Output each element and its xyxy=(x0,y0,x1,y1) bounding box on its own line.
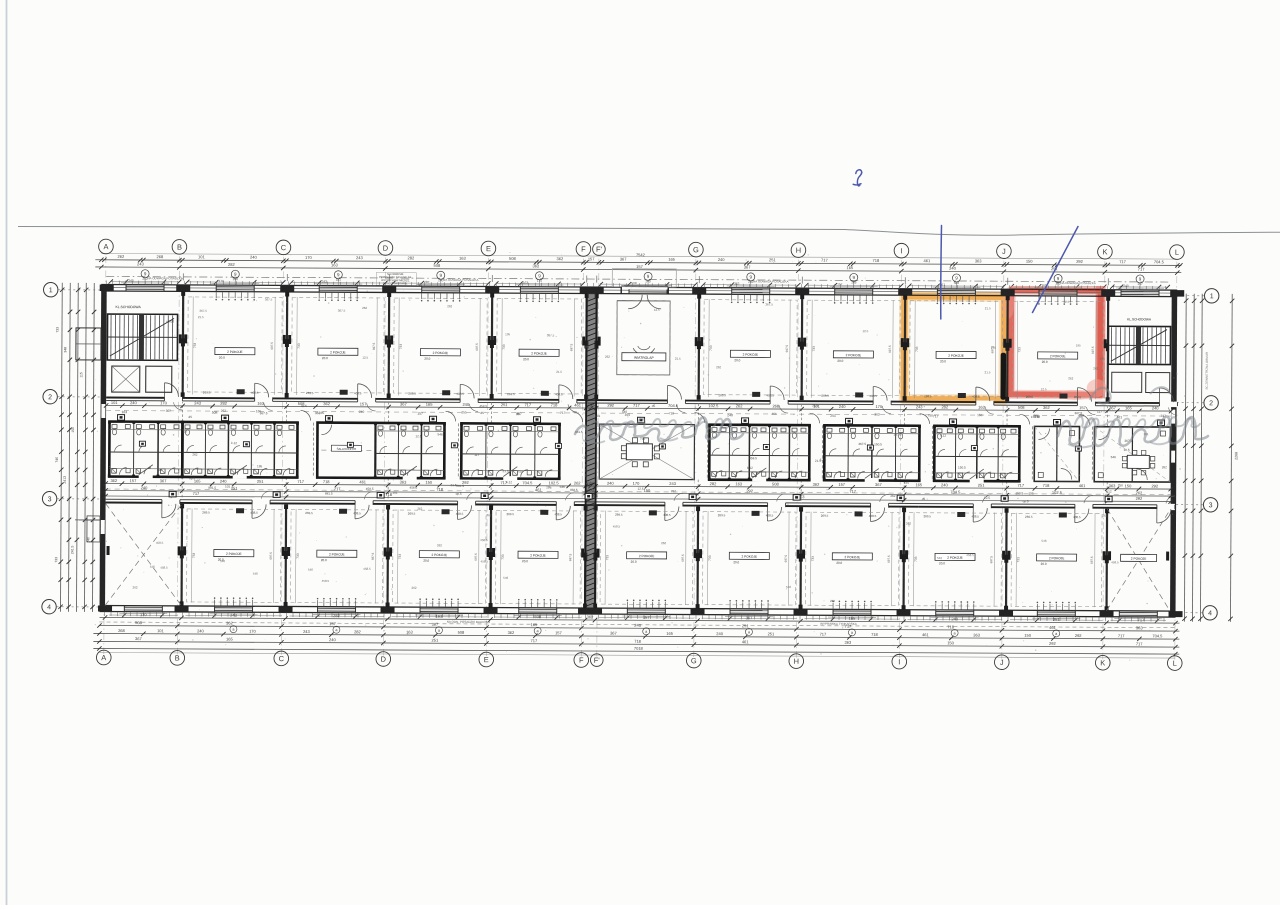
svg-text:733: 733 xyxy=(1016,557,1020,563)
svg-text:3: 3 xyxy=(48,496,52,503)
svg-text:12.5: 12.5 xyxy=(1124,448,1130,452)
svg-text:733: 733 xyxy=(192,553,196,559)
svg-text:717: 717 xyxy=(560,411,566,415)
svg-text:461: 461 xyxy=(535,487,542,492)
svg-text:269.5: 269.5 xyxy=(821,394,829,398)
svg-text:240: 240 xyxy=(949,266,956,271)
svg-text:697.5: 697.5 xyxy=(372,342,376,350)
svg-text:101: 101 xyxy=(225,485,230,489)
svg-text:408.5: 408.5 xyxy=(250,511,258,515)
svg-text:A: A xyxy=(101,653,106,662)
svg-text:750: 750 xyxy=(518,470,523,474)
svg-text:150: 150 xyxy=(947,640,954,645)
svg-text:546: 546 xyxy=(503,576,508,580)
svg-text:546: 546 xyxy=(150,565,155,569)
svg-text:733: 733 xyxy=(501,554,505,560)
svg-text:262: 262 xyxy=(447,304,452,308)
svg-text:292: 292 xyxy=(1049,641,1056,646)
svg-text:262: 262 xyxy=(1102,514,1107,518)
svg-text:362: 362 xyxy=(1043,405,1050,410)
svg-text:367: 367 xyxy=(160,478,167,483)
svg-text:458.5: 458.5 xyxy=(322,579,330,583)
svg-text:408.5: 408.5 xyxy=(972,395,980,399)
svg-text:KL.SCHODOWA: KL.SCHODOWA xyxy=(115,305,141,309)
svg-text:2 POKOJE: 2 POKOJE xyxy=(227,350,243,354)
svg-text:150: 150 xyxy=(425,480,432,485)
svg-text:240: 240 xyxy=(462,402,469,407)
svg-text:733: 733 xyxy=(915,346,919,352)
svg-text:458.5: 458.5 xyxy=(570,488,578,492)
svg-text:SC.ZEWNETRZNA OBMUR: SC.ZEWNETRZNA OBMUR xyxy=(1205,351,1209,390)
svg-text:2 POKOJE: 2 POKOJE xyxy=(432,553,448,557)
svg-text:20.0: 20.0 xyxy=(836,561,842,565)
svg-text:269.5: 269.5 xyxy=(305,511,313,515)
svg-text:733: 733 xyxy=(398,554,402,560)
svg-text:458.5: 458.5 xyxy=(366,487,374,491)
svg-text:546: 546 xyxy=(937,556,942,560)
svg-text:733: 733 xyxy=(605,555,609,561)
svg-text:881.5: 881.5 xyxy=(325,491,333,495)
svg-text:704.5: 704.5 xyxy=(1152,633,1163,638)
svg-text:268: 268 xyxy=(118,628,125,633)
svg-text:408.5: 408.5 xyxy=(554,512,562,516)
svg-text:20.0: 20.0 xyxy=(423,559,429,563)
svg-text:458.5: 458.5 xyxy=(480,538,488,542)
svg-text:165: 165 xyxy=(915,482,922,487)
svg-text:251: 251 xyxy=(978,483,985,488)
svg-text:12.5: 12.5 xyxy=(984,496,990,500)
svg-text:2 POKOJE: 2 POKOJE xyxy=(1049,556,1065,560)
svg-text:367.5: 367.5 xyxy=(894,433,902,437)
svg-text:704.5: 704.5 xyxy=(1154,259,1165,264)
svg-text:157: 157 xyxy=(1137,282,1143,286)
svg-text:408.5: 408.5 xyxy=(456,392,464,396)
svg-text:I: I xyxy=(898,657,900,666)
svg-text:697.5: 697.5 xyxy=(569,343,573,351)
svg-text:165: 165 xyxy=(666,631,673,636)
svg-text:733: 733 xyxy=(54,557,58,563)
svg-text:262: 262 xyxy=(437,543,442,547)
svg-text:363: 363 xyxy=(400,480,407,485)
svg-text:367.5: 367.5 xyxy=(260,411,268,415)
svg-text:704.5: 704.5 xyxy=(950,489,961,494)
svg-text:+0.00: +0.00 xyxy=(166,319,174,323)
svg-text:717: 717 xyxy=(849,489,856,494)
svg-text:362: 362 xyxy=(323,401,330,406)
svg-text:733: 733 xyxy=(296,553,300,559)
svg-text:697.5: 697.5 xyxy=(989,556,993,564)
svg-text:408.5: 408.5 xyxy=(766,513,774,517)
svg-text:262: 262 xyxy=(605,355,610,359)
svg-text:20.0: 20.0 xyxy=(522,559,528,563)
svg-text:362: 362 xyxy=(226,621,233,626)
svg-text:195: 195 xyxy=(584,345,589,349)
svg-text:717: 717 xyxy=(821,258,828,263)
svg-text:H: H xyxy=(794,657,799,666)
svg-text:697.5: 697.5 xyxy=(784,554,788,562)
svg-text:20.0: 20.0 xyxy=(1041,562,1047,566)
svg-text:367: 367 xyxy=(432,622,439,627)
svg-text:B: B xyxy=(175,654,180,663)
svg-text:262: 262 xyxy=(221,409,226,413)
svg-text:12.5: 12.5 xyxy=(362,356,368,360)
svg-text:251: 251 xyxy=(257,479,264,484)
svg-text:508: 508 xyxy=(458,630,465,635)
svg-text:2 POKOJE: 2 POKOJE xyxy=(330,350,346,354)
svg-text:NA ODWAGA POSADZKA: NA ODWAGA POSADZKA xyxy=(753,279,788,283)
svg-text:268: 268 xyxy=(772,403,779,408)
svg-text:282: 282 xyxy=(333,613,340,618)
svg-text:20.0: 20.0 xyxy=(631,560,637,564)
svg-text:7018: 7018 xyxy=(634,646,644,651)
svg-text:165: 165 xyxy=(849,616,856,621)
svg-text:157: 157 xyxy=(360,401,367,406)
svg-text:195: 195 xyxy=(319,411,324,415)
svg-text:362: 362 xyxy=(532,263,539,268)
svg-text:20.0: 20.0 xyxy=(734,358,740,362)
svg-text:251: 251 xyxy=(501,402,508,407)
svg-text:269.5: 269.5 xyxy=(1025,515,1033,519)
svg-text:461: 461 xyxy=(924,258,931,263)
svg-text:733: 733 xyxy=(812,346,816,352)
svg-text:157: 157 xyxy=(1079,405,1086,410)
svg-text:262: 262 xyxy=(412,586,417,590)
svg-text:163: 163 xyxy=(523,281,529,285)
svg-text:20.0: 20.0 xyxy=(733,560,739,564)
svg-text:251: 251 xyxy=(830,414,836,418)
svg-text:363: 363 xyxy=(845,640,852,645)
svg-text:262: 262 xyxy=(362,306,367,310)
svg-text:718: 718 xyxy=(871,632,878,637)
svg-text:717: 717 xyxy=(297,479,304,484)
svg-text:733: 733 xyxy=(297,343,301,349)
svg-text:L: L xyxy=(1173,659,1177,668)
svg-text:195: 195 xyxy=(904,481,909,485)
svg-text:262: 262 xyxy=(142,277,148,281)
svg-text:717: 717 xyxy=(1138,267,1145,272)
svg-text:117: 117 xyxy=(1097,410,1102,414)
svg-text:2268: 2268 xyxy=(1234,452,1238,460)
svg-text:21.5: 21.5 xyxy=(198,315,204,319)
svg-text:733: 733 xyxy=(1017,347,1021,353)
svg-text:240: 240 xyxy=(607,481,614,486)
svg-text:k.12: k.12 xyxy=(747,466,753,470)
svg-text:262: 262 xyxy=(736,403,743,408)
svg-text:362: 362 xyxy=(508,630,515,635)
svg-text:251: 251 xyxy=(769,257,776,262)
svg-text:163: 163 xyxy=(257,401,264,406)
svg-text:458.5: 458.5 xyxy=(481,559,489,563)
svg-text:195: 195 xyxy=(546,485,551,489)
svg-text:102.5: 102.5 xyxy=(708,403,719,408)
svg-text:733: 733 xyxy=(193,343,197,349)
svg-text:A: A xyxy=(103,242,108,251)
svg-text:G: G xyxy=(693,245,699,254)
svg-text:718: 718 xyxy=(947,624,954,629)
svg-text:d5: d5 xyxy=(517,412,521,416)
svg-text:2 POKOJE: 2 POKOJE xyxy=(226,552,242,556)
svg-text:KL.SCHODOWA: KL.SCHODOWA xyxy=(1127,317,1152,321)
svg-text:101: 101 xyxy=(157,628,164,633)
svg-text:12.5: 12.5 xyxy=(1041,387,1047,391)
svg-text:367: 367 xyxy=(135,636,142,641)
svg-text:243: 243 xyxy=(137,261,144,266)
svg-text:2 POKOJE: 2 POKOJE xyxy=(1050,354,1066,358)
svg-text:195: 195 xyxy=(991,346,996,350)
svg-text:2 POKOJE: 2 POKOJE xyxy=(947,556,963,560)
svg-text:20.0: 20.0 xyxy=(523,357,529,361)
svg-text:508: 508 xyxy=(212,411,218,415)
svg-text:717: 717 xyxy=(531,638,538,643)
svg-text:717: 717 xyxy=(524,402,531,407)
svg-text:251: 251 xyxy=(432,638,439,643)
svg-text:262: 262 xyxy=(830,599,835,603)
svg-text:D: D xyxy=(383,244,388,253)
svg-text:3: 3 xyxy=(1209,502,1213,509)
svg-text:718: 718 xyxy=(669,411,675,415)
svg-text:508: 508 xyxy=(954,281,960,285)
svg-text:20.0: 20.0 xyxy=(219,356,225,360)
svg-text:2 POKOJE: 2 POKOJE xyxy=(948,354,964,358)
svg-text:508: 508 xyxy=(509,256,516,261)
svg-text:NA ODWAGA POSADZKA: NA ODWAGA POSADZKA xyxy=(1060,281,1095,285)
svg-text:21.5: 21.5 xyxy=(451,483,457,487)
svg-text:240: 240 xyxy=(839,404,846,409)
svg-text:102.5: 102.5 xyxy=(1052,490,1063,495)
svg-text:508: 508 xyxy=(631,281,637,285)
svg-text:408.5: 408.5 xyxy=(354,391,362,395)
svg-text:251: 251 xyxy=(768,631,775,636)
svg-text:458.5: 458.5 xyxy=(966,553,974,557)
svg-text:240: 240 xyxy=(718,257,725,262)
svg-text:367: 367 xyxy=(746,615,753,620)
svg-text:20.0: 20.0 xyxy=(424,357,430,361)
svg-text:243: 243 xyxy=(669,481,676,486)
svg-text:746: 746 xyxy=(55,457,59,463)
svg-text:508: 508 xyxy=(135,620,142,625)
svg-text:367.5: 367.5 xyxy=(338,309,346,313)
svg-text:117: 117 xyxy=(182,430,187,434)
svg-text:269.5: 269.5 xyxy=(202,511,210,515)
svg-text:240: 240 xyxy=(329,637,336,642)
svg-text:12.5: 12.5 xyxy=(415,434,421,438)
svg-text:269.5: 269.5 xyxy=(203,391,211,395)
svg-text:508: 508 xyxy=(534,614,541,619)
svg-text:150.5: 150.5 xyxy=(958,465,966,469)
svg-text:150: 150 xyxy=(1024,633,1031,638)
svg-text:367.5: 367.5 xyxy=(547,333,555,337)
svg-text:NA ODN. POSADZKI BALKONU: NA ODN. POSADZKI BALKONU xyxy=(447,620,491,624)
svg-text:2: 2 xyxy=(1209,400,1213,407)
svg-text:195: 195 xyxy=(257,464,262,468)
svg-text:282: 282 xyxy=(228,262,235,267)
svg-text:546: 546 xyxy=(1041,539,1046,543)
svg-text:21.5: 21.5 xyxy=(556,370,562,374)
svg-text:170: 170 xyxy=(249,629,256,634)
svg-text:k.12: k.12 xyxy=(506,480,512,484)
svg-text:2 POKOJE: 2 POKOJE xyxy=(531,352,547,356)
svg-text:J: J xyxy=(1000,658,1004,667)
svg-text:D: D xyxy=(381,655,386,664)
svg-text:282: 282 xyxy=(408,255,415,260)
svg-text:12.5: 12.5 xyxy=(654,308,660,312)
svg-text:117: 117 xyxy=(583,456,588,460)
svg-text:165: 165 xyxy=(1125,405,1132,410)
svg-text:408.5: 408.5 xyxy=(251,391,259,395)
svg-text:101: 101 xyxy=(198,254,205,259)
svg-text:K: K xyxy=(1102,247,1107,256)
svg-text:165: 165 xyxy=(426,402,433,407)
svg-text:21.5: 21.5 xyxy=(812,404,818,408)
svg-text:150.5: 150.5 xyxy=(1031,415,1039,419)
svg-text:op.5: op.5 xyxy=(301,404,307,408)
svg-text:292: 292 xyxy=(1075,633,1082,638)
svg-text:d5: d5 xyxy=(480,411,484,415)
svg-text:367: 367 xyxy=(620,256,627,261)
svg-text:367: 367 xyxy=(1109,405,1116,410)
svg-text:508: 508 xyxy=(772,481,779,486)
svg-text:170: 170 xyxy=(633,481,640,486)
svg-text:348: 348 xyxy=(63,347,67,353)
svg-text:269.5: 269.5 xyxy=(924,394,932,398)
svg-text:704.5: 704.5 xyxy=(522,480,533,485)
svg-text:269.5: 269.5 xyxy=(923,514,931,518)
svg-text:170: 170 xyxy=(160,400,167,405)
svg-text:251: 251 xyxy=(1053,617,1060,622)
svg-text:269.5: 269.5 xyxy=(615,513,623,517)
svg-text:2 POKOJE: 2 POKOJE xyxy=(845,555,861,559)
svg-text:4: 4 xyxy=(47,604,51,611)
svg-text:4: 4 xyxy=(1208,610,1212,617)
svg-text:163: 163 xyxy=(735,481,742,486)
svg-text:363: 363 xyxy=(975,258,982,263)
svg-text:2 POKOJE: 2 POKOJE xyxy=(433,351,449,355)
svg-text:282: 282 xyxy=(710,481,717,486)
svg-text:d5: d5 xyxy=(922,497,926,501)
svg-text:163: 163 xyxy=(122,410,128,414)
svg-text:NA ODWAGA POSADZKA: NA ODWAGA POSADZKA xyxy=(443,278,478,282)
svg-text:20.0: 20.0 xyxy=(321,558,327,562)
svg-text:2 POKOJE: 2 POKOJE xyxy=(530,554,546,558)
svg-text:243: 243 xyxy=(645,279,651,283)
svg-text:12.5: 12.5 xyxy=(1063,300,1069,304)
svg-text:262: 262 xyxy=(906,521,911,525)
svg-text:E: E xyxy=(484,655,489,664)
svg-text:546: 546 xyxy=(308,568,313,572)
svg-text:150.5: 150.5 xyxy=(1015,491,1023,495)
svg-text:2 POKOJE: 2 POKOJE xyxy=(329,552,345,556)
svg-text:262: 262 xyxy=(574,480,581,485)
svg-text:717: 717 xyxy=(633,403,640,408)
svg-text:362: 362 xyxy=(1055,281,1061,285)
svg-text:408.5: 408.5 xyxy=(869,394,877,398)
svg-text:282: 282 xyxy=(941,404,948,409)
svg-text:150: 150 xyxy=(71,427,75,433)
svg-text:1: 1 xyxy=(49,287,53,294)
svg-text:367: 367 xyxy=(166,409,172,413)
svg-text:21.5: 21.5 xyxy=(675,357,681,361)
svg-text:150: 150 xyxy=(1125,483,1132,488)
svg-text:717: 717 xyxy=(1118,633,1125,638)
svg-text:269.5: 269.5 xyxy=(306,391,314,395)
svg-text:251: 251 xyxy=(742,623,749,628)
svg-text:WIATROLAP: WIATROLAP xyxy=(634,356,654,360)
svg-text:262: 262 xyxy=(118,254,125,259)
svg-text:697.5: 697.5 xyxy=(1090,556,1094,564)
svg-text:367.5: 367.5 xyxy=(265,298,273,302)
svg-text:240: 240 xyxy=(141,485,148,490)
svg-text:op.5: op.5 xyxy=(456,492,462,496)
svg-text:733: 733 xyxy=(399,344,403,350)
svg-text:718: 718 xyxy=(873,258,880,263)
svg-text:733: 733 xyxy=(811,556,815,562)
svg-text:170: 170 xyxy=(537,279,543,283)
svg-text:2 POKOJE: 2 POKOJE xyxy=(742,555,758,559)
svg-text:NA ODWAGA POSADZKA: NA ODWAGA POSADZKA xyxy=(147,276,182,280)
svg-text:170: 170 xyxy=(305,255,312,260)
svg-text:157: 157 xyxy=(417,412,423,416)
svg-text:269.5: 269.5 xyxy=(718,513,726,517)
svg-text:408.5: 408.5 xyxy=(456,512,464,516)
svg-text:269.5: 269.5 xyxy=(507,392,515,396)
svg-text:2 POKOJE: 2 POKOJE xyxy=(846,353,862,357)
svg-text:717: 717 xyxy=(1138,617,1145,622)
svg-text:101: 101 xyxy=(336,278,342,282)
svg-text:408.5: 408.5 xyxy=(1073,515,1081,519)
svg-text:363: 363 xyxy=(1136,625,1143,630)
svg-text:2 POKOJE: 2 POKOJE xyxy=(743,353,759,357)
svg-text:163: 163 xyxy=(436,614,443,619)
svg-text:262: 262 xyxy=(890,494,895,498)
svg-text:2413: 2413 xyxy=(63,476,67,484)
svg-text:240: 240 xyxy=(359,410,365,414)
svg-text:546: 546 xyxy=(786,585,791,589)
svg-text:362: 362 xyxy=(813,482,820,487)
svg-text:508: 508 xyxy=(1018,405,1025,410)
svg-text:704.5: 704.5 xyxy=(668,403,679,408)
svg-text:269.5: 269.5 xyxy=(506,512,514,516)
svg-text:750: 750 xyxy=(1118,483,1123,487)
svg-text:458.5: 458.5 xyxy=(1111,560,1119,564)
svg-text:157: 157 xyxy=(838,482,845,487)
svg-text:240: 240 xyxy=(716,631,723,636)
svg-text:269.5: 269.5 xyxy=(408,512,416,516)
svg-text:697.5: 697.5 xyxy=(270,342,274,350)
svg-text:d5: d5 xyxy=(652,404,656,408)
svg-text:C: C xyxy=(281,243,287,252)
svg-text:I: I xyxy=(900,246,902,255)
svg-text:292: 292 xyxy=(607,403,614,408)
svg-text:408.5: 408.5 xyxy=(353,511,361,515)
svg-text:243: 243 xyxy=(322,280,328,284)
svg-text:195: 195 xyxy=(505,332,510,336)
svg-text:262: 262 xyxy=(192,453,197,457)
svg-text:243: 243 xyxy=(916,404,923,409)
svg-text:363: 363 xyxy=(874,413,880,417)
svg-text:367: 367 xyxy=(610,631,617,636)
svg-text:269.5: 269.5 xyxy=(1026,395,1034,399)
svg-text:697.5: 697.5 xyxy=(888,345,892,353)
svg-text:461: 461 xyxy=(574,402,581,407)
svg-text:165: 165 xyxy=(531,622,538,627)
svg-text:697.5: 697.5 xyxy=(1091,346,1095,354)
svg-text:718: 718 xyxy=(1043,483,1050,488)
svg-text:367: 367 xyxy=(875,482,882,487)
svg-text:367.5: 367.5 xyxy=(1074,411,1082,415)
svg-text:117: 117 xyxy=(474,453,479,457)
svg-text:408.5: 408.5 xyxy=(869,514,877,518)
svg-text:G: G xyxy=(691,656,697,665)
